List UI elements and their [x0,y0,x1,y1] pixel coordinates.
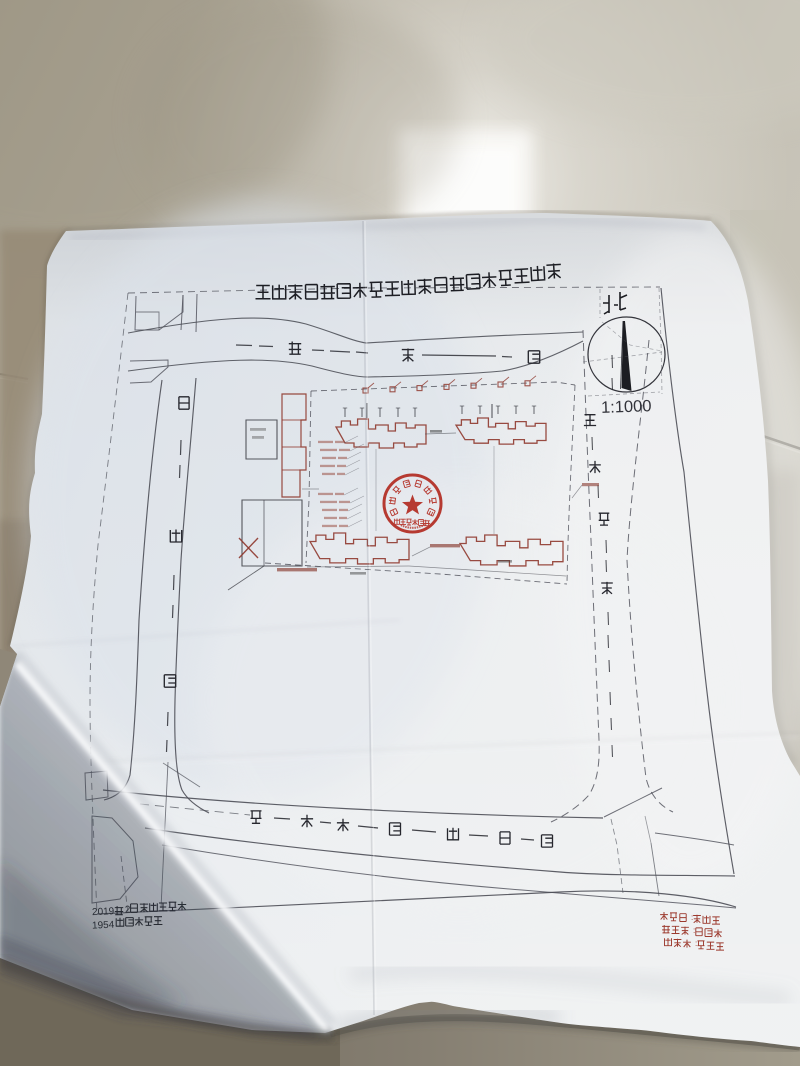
svg-text::: : [691,913,693,922]
svg-text::: : [693,926,695,935]
svg-text:1:1000: 1:1000 [601,397,652,417]
svg-text::: : [695,939,697,948]
